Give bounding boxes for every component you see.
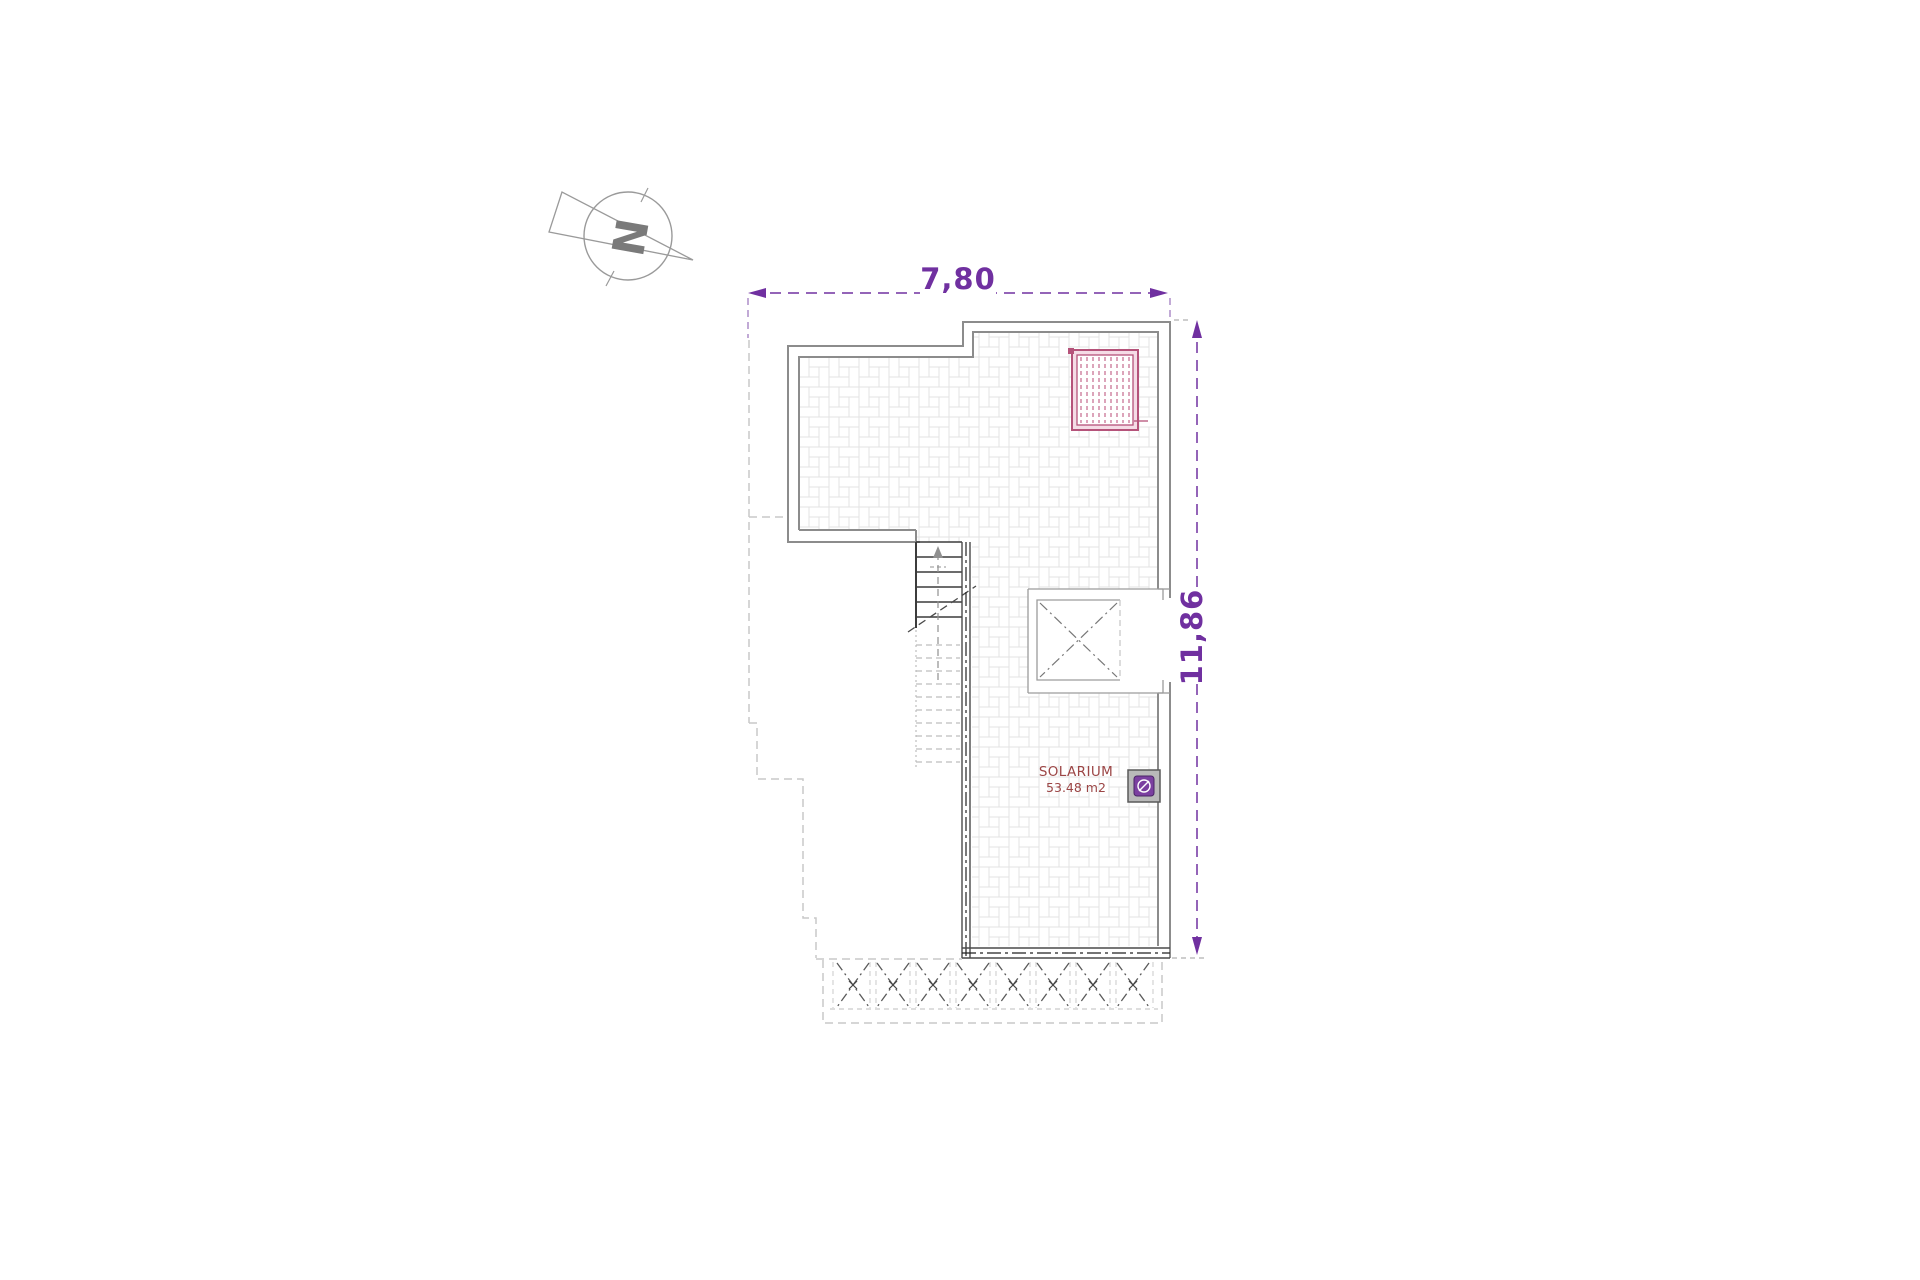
stair-treads: [916, 557, 962, 617]
room-name-label: SOLARIUM: [1039, 764, 1113, 780]
floor-plan-page: N: [0, 0, 1920, 1280]
stair-up-arrow-icon: [930, 546, 946, 680]
room-area-label: 53.48 m2: [1046, 780, 1106, 795]
room-label-group: SOLARIUM 53.48 m2: [1039, 764, 1113, 795]
pergola-grill-icon: [1068, 348, 1148, 430]
height-dimension-label: 11,86: [1175, 589, 1209, 686]
compass-tick-icon: [606, 271, 614, 286]
fence-strip: [833, 962, 1153, 1008]
dimension-vertical: 11,86: [1175, 320, 1209, 955]
roof-void: [1028, 589, 1163, 693]
void-cross-icon: [1040, 603, 1117, 677]
width-dimension-label: 7,80: [920, 262, 996, 296]
arrowhead-left-icon: [748, 288, 766, 298]
arrowhead-up-icon: [1192, 320, 1202, 338]
arrowhead-down-icon: [1192, 937, 1202, 955]
dimension-horizontal: 7,80: [748, 262, 1170, 338]
floor-plan-drawing: N: [0, 0, 1920, 1280]
light-fixture-icon: [1128, 770, 1160, 802]
north-letter: N: [600, 214, 657, 259]
stair-wall-section: [962, 542, 970, 958]
south-wall-section: [962, 948, 1170, 958]
north-arrow: N: [549, 188, 693, 286]
arrowhead-right-icon: [1150, 288, 1168, 298]
